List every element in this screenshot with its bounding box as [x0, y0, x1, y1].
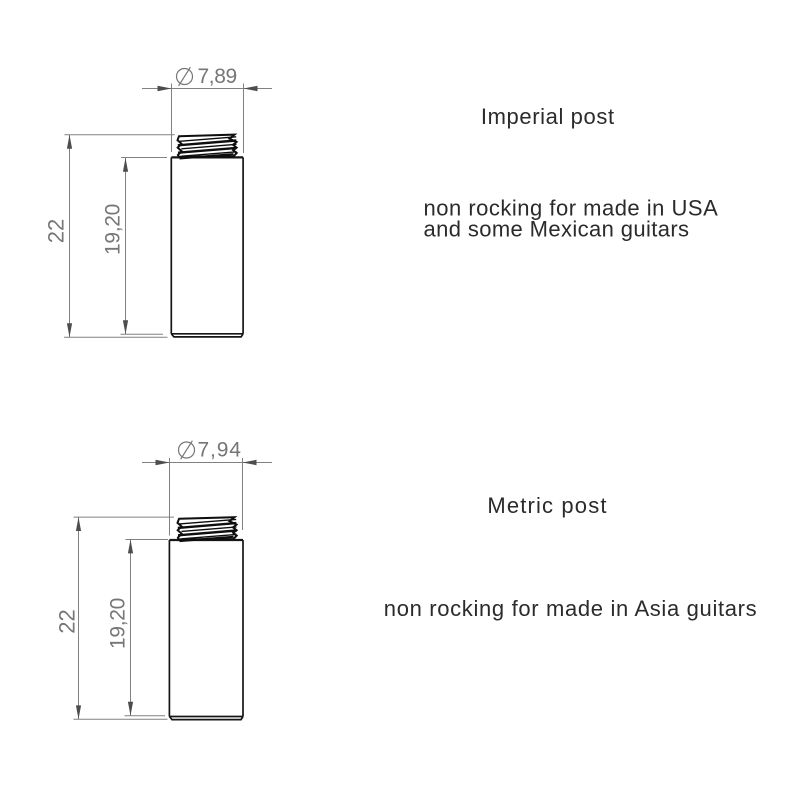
svg-text:7,89: 7,89: [198, 65, 237, 88]
svg-text:Metric post: Metric post: [487, 493, 607, 518]
svg-text:Imperial post: Imperial post: [481, 104, 615, 129]
svg-text:22: 22: [55, 609, 80, 633]
svg-text:19,20: 19,20: [102, 204, 125, 255]
svg-text:7,94: 7,94: [198, 439, 242, 462]
svg-text:and some Mexican guitars: and some Mexican guitars: [424, 217, 690, 242]
svg-text:22: 22: [44, 219, 69, 243]
svg-text:non rocking for made in Asia g: non rocking for made in Asia guitars: [384, 596, 758, 621]
svg-text:19,20: 19,20: [107, 598, 130, 649]
